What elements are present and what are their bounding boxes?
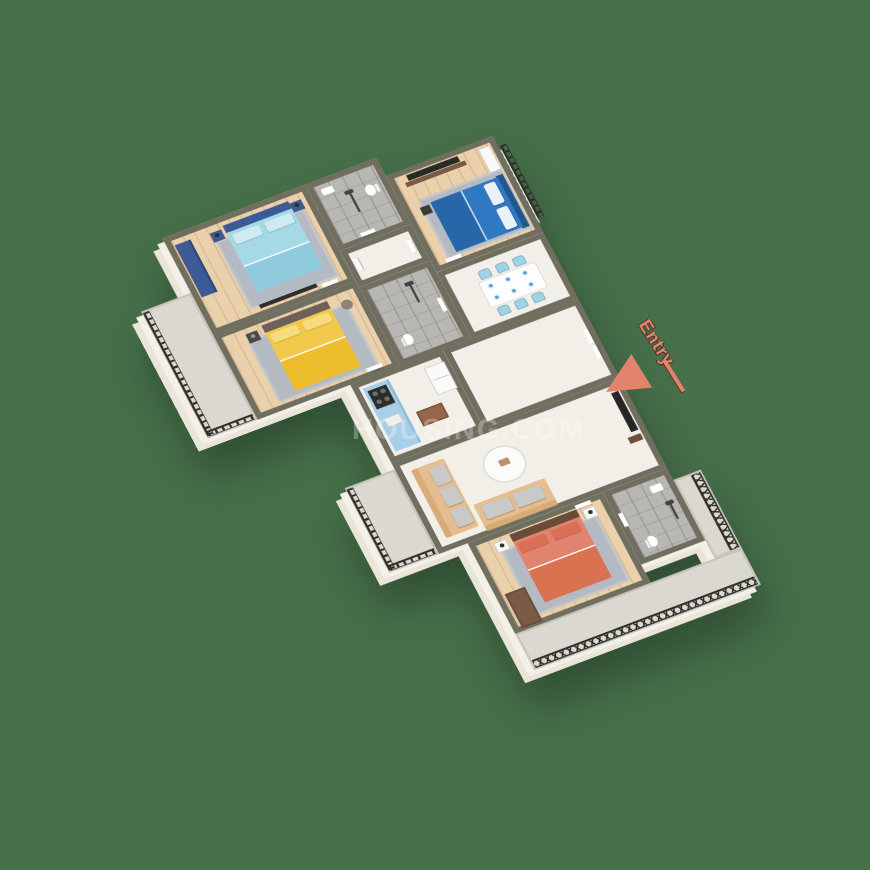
table-decor — [498, 457, 511, 467]
washbasin — [648, 482, 665, 495]
door — [353, 258, 364, 272]
entry-arrow-icon — [606, 354, 652, 392]
door — [360, 228, 376, 237]
table-lamp — [499, 543, 505, 548]
plate — [509, 287, 518, 295]
cushion — [450, 505, 475, 528]
washbasin — [319, 185, 336, 197]
balcony-railing — [346, 487, 395, 570]
entry-underline — [663, 360, 685, 393]
balcony-railing — [143, 311, 214, 437]
burner — [379, 388, 386, 394]
plate — [520, 269, 529, 277]
fridge-door-line — [433, 374, 449, 381]
shower — [669, 503, 679, 520]
plate — [486, 282, 495, 290]
burner — [383, 396, 390, 402]
door — [437, 297, 448, 312]
plate — [526, 280, 535, 288]
cushion — [428, 464, 453, 487]
table-lamp — [587, 510, 593, 515]
shower — [409, 284, 421, 303]
burner — [372, 391, 379, 397]
table-lamp — [294, 202, 300, 207]
entry-marker: Entry — [600, 310, 720, 430]
cushion — [439, 484, 464, 507]
table-lamp — [214, 233, 220, 238]
door — [406, 239, 417, 253]
door — [618, 512, 629, 527]
media-console — [628, 433, 644, 444]
shower — [349, 192, 361, 212]
plate — [492, 293, 501, 301]
burner — [376, 399, 383, 405]
entry-label: Entry — [634, 316, 679, 370]
entry-door — [583, 329, 594, 344]
table-lamp — [250, 333, 256, 338]
housing-watermark: HOUSING.COM — [352, 414, 612, 447]
cushion — [512, 484, 546, 508]
wardrobe — [175, 240, 218, 298]
plate — [503, 275, 512, 283]
balcony-railing — [388, 548, 436, 571]
balcony-railing — [206, 414, 254, 437]
cushion — [481, 496, 515, 520]
